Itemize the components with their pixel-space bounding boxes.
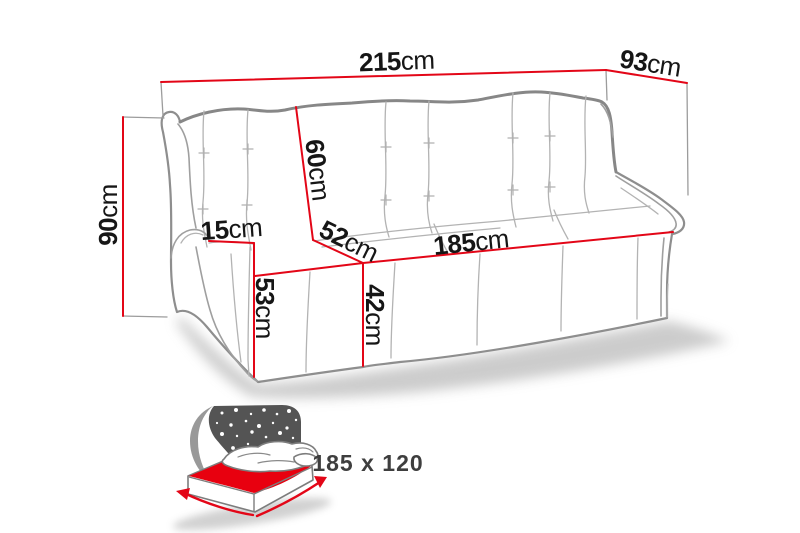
sleeping-area-icon [171, 405, 332, 533]
dim-armrest-height-label: 53cm [250, 277, 280, 339]
dim-seat-height-label: 42cm [360, 284, 390, 346]
sleeping-area-size-label: 185 x 120 [312, 450, 423, 476]
dim-overall-height-label: 90cm [93, 184, 123, 246]
dim-overall-depth-label: 93cm [618, 43, 684, 82]
dim-overall-width-label: 215cm [358, 45, 435, 78]
sofa-dimension-diagram: 215cm 93cm 90cm 60cm 15cm 52cm 185cm 53c… [0, 0, 800, 533]
dim-armrest-width-label: 15cm [200, 212, 264, 246]
diagram-canvas: 215cm 93cm 90cm 60cm 15cm 52cm 185cm 53c… [0, 0, 800, 533]
